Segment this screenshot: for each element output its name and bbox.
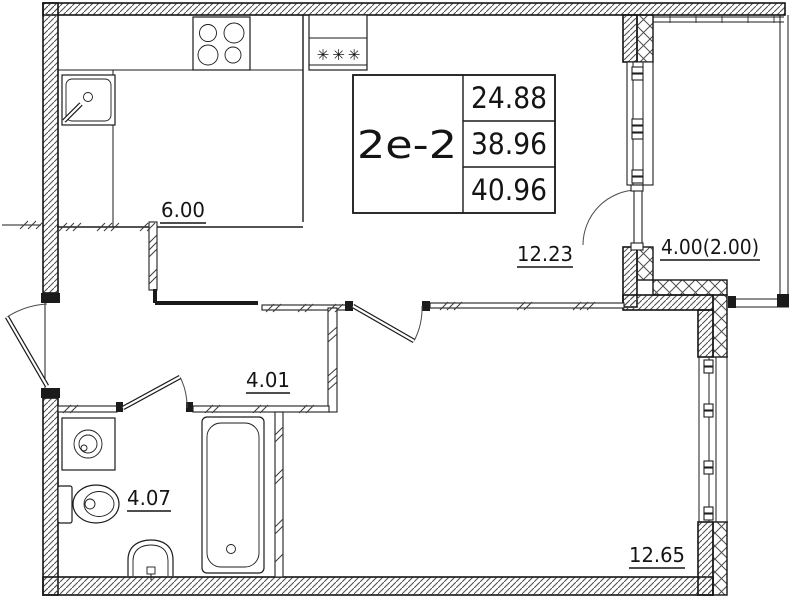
living-room-window (627, 62, 653, 185)
unit-stamp: 2е-2 24.88 38.96 40.96 (353, 75, 555, 213)
kitchen-area-label: 6.00 (161, 198, 205, 222)
bathtub (202, 417, 264, 573)
wall-top (43, 3, 785, 15)
bedroom-door-jamb-left (345, 301, 353, 311)
stamp-unit-type: 2е-2 (357, 123, 457, 167)
bathroom-door (123, 377, 187, 408)
washing-machine (62, 418, 115, 470)
bedroom-window (698, 357, 728, 522)
hallway-area-label: 4.01 (246, 368, 290, 392)
bathroom-area-label: 4.07 (127, 486, 171, 510)
wall-bottom (43, 577, 713, 595)
balcony-area-label: 4.00(2.00) (661, 235, 759, 259)
wall-balcony-insulation-upper (637, 15, 653, 62)
wall-right-insulation-upper (713, 295, 727, 357)
balcony-glazing (653, 15, 789, 308)
wall-balcony-partition-upper (623, 15, 637, 62)
bedroom-door-jamb-right (422, 301, 430, 311)
entrance-jamb-bottom (41, 388, 60, 398)
bathroom-door-jamb-left (116, 402, 123, 412)
stove (193, 17, 250, 70)
wall-right-insulation-lower (713, 522, 727, 595)
stamp-area-total: 38.96 (471, 127, 547, 161)
wall-left-lower (43, 398, 58, 595)
partition-hall-bedroom (328, 308, 337, 412)
entrance-jamb-top (41, 293, 60, 303)
bedroom-area-label: 12.65 (629, 543, 685, 567)
toilet (58, 485, 119, 523)
kitchen-sink (62, 75, 115, 125)
entrance-door (7, 304, 47, 386)
bedroom-door (353, 306, 422, 341)
ventilation-shaft: ✳✳✳ (309, 15, 367, 70)
kitchen-fixtures: ✳✳✳ (58, 15, 367, 227)
wall-right-lower (698, 522, 713, 595)
wall-balcony-bottom-insulation (653, 280, 727, 295)
vent-symbol: ✳✳✳ (317, 46, 364, 64)
floor-plan: ✳✳✳ 2е (0, 0, 791, 600)
wall-bathroom-right (275, 412, 283, 577)
balcony-door (583, 185, 653, 250)
wall-balcony-bottom (623, 295, 713, 310)
living-area-label: 12.23 (517, 242, 573, 266)
wall-left-upper (43, 3, 58, 293)
wall-right-upper (698, 310, 713, 357)
washbasin (128, 540, 173, 580)
wall-balcony-insulation-lower (637, 247, 653, 280)
wall-living-hall-solid (155, 301, 258, 305)
stamp-area-total-balcony: 40.96 (471, 173, 547, 207)
stamp-area-living: 24.88 (471, 81, 547, 115)
wall-living-hall-corner (153, 289, 157, 303)
